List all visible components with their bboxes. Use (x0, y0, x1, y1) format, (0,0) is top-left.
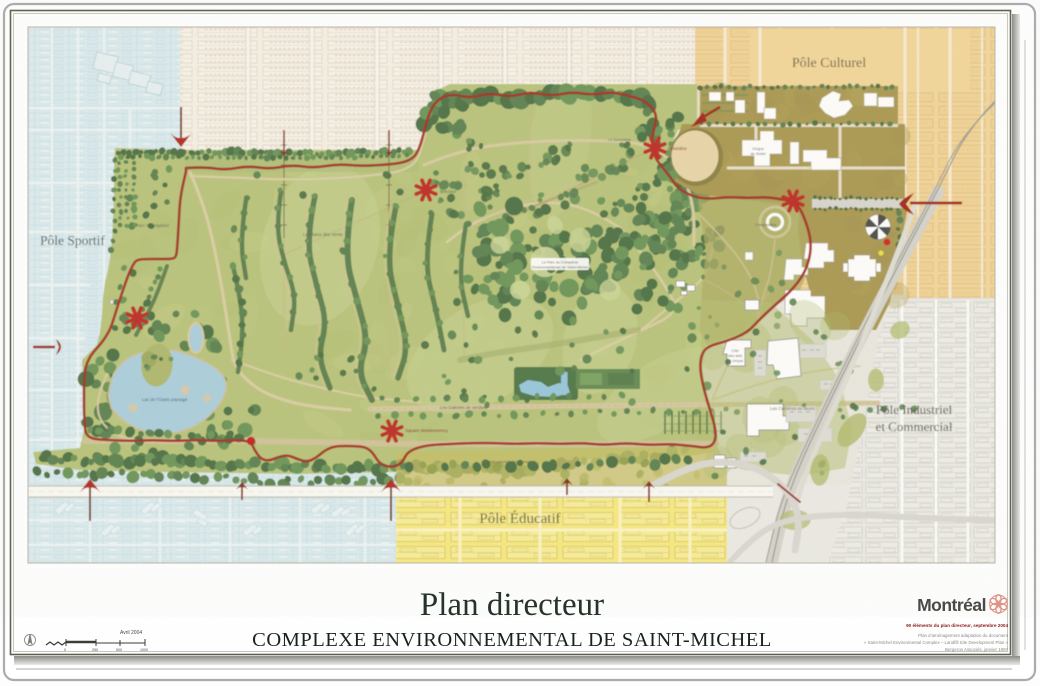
svg-text:Montréal: Montréal (917, 595, 986, 615)
svg-text:Plan d’aménagement adaptation: Plan d’aménagement adaptation du documen… (918, 633, 1009, 638)
svg-text:« Saint-Michel Environmental C: « Saint-Michel Environmental Complex – L… (864, 640, 1009, 645)
svg-text:500: 500 (116, 648, 122, 652)
svg-text:90 éléments du plan directeur,: 90 éléments du plan directeur, septembre… (906, 623, 1008, 628)
svg-text:1000: 1000 (140, 648, 148, 652)
svg-text:Bergeron Associés, janvier 199: Bergeron Associés, janvier 1997 (945, 647, 1009, 652)
svg-text:0: 0 (64, 648, 66, 652)
svg-text:Plan directeur: Plan directeur (420, 587, 604, 623)
svg-text:250: 250 (92, 648, 98, 652)
svg-text:COMPLEXE ENVIRONNEMENTAL DE SA: COMPLEXE ENVIRONNEMENTAL DE SAINT-MICHEL (252, 629, 772, 651)
svg-text:Avril 2004: Avril 2004 (120, 630, 142, 636)
